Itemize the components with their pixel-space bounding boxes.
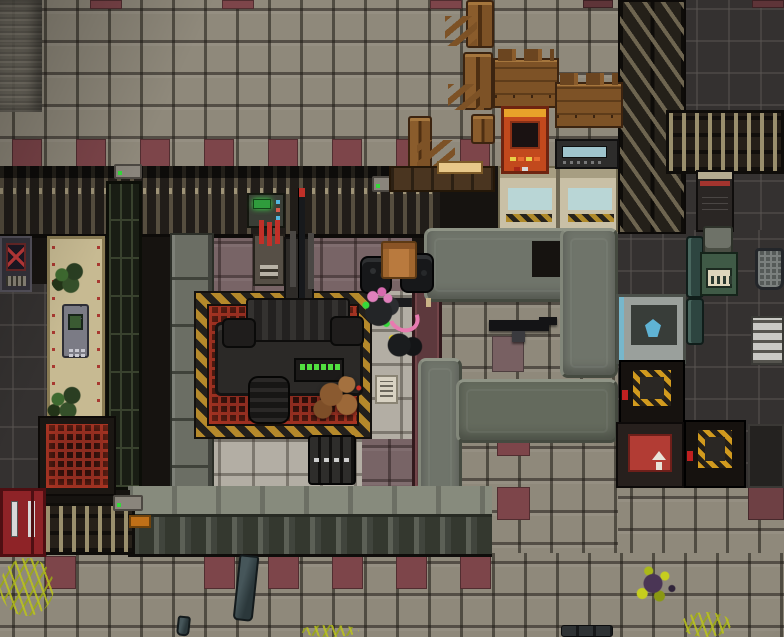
maroon-tile bbox=[222, 0, 254, 9]
turret-tread bbox=[248, 376, 290, 424]
red-lockers[interactable] bbox=[0, 488, 46, 557]
corgi-creature[interactable] bbox=[306, 376, 366, 422]
blade-tip[interactable] bbox=[176, 615, 191, 636]
bottom-wall-band bbox=[128, 486, 492, 557]
wall-device[interactable] bbox=[114, 164, 142, 179]
ore-machine[interactable] bbox=[616, 294, 686, 364]
girder-wall-band bbox=[666, 110, 784, 174]
maroon-tile bbox=[748, 487, 784, 520]
maroon-tile bbox=[90, 0, 122, 9]
maroon-tile bbox=[583, 0, 613, 8]
serving-tray[interactable] bbox=[437, 161, 483, 174]
maroon-tile bbox=[460, 556, 491, 589]
shelf-rack[interactable] bbox=[751, 316, 784, 365]
dead-rat-splat[interactable] bbox=[626, 561, 680, 611]
dark-wall-panel bbox=[748, 424, 784, 488]
red-grid-furnace[interactable] bbox=[40, 418, 114, 494]
maroon-tile bbox=[752, 0, 784, 8]
arcade-machine[interactable] bbox=[501, 106, 549, 174]
floor-top-right-dark bbox=[684, 0, 784, 112]
game-viewport bbox=[0, 0, 784, 637]
orange-sign bbox=[129, 515, 151, 528]
wood-debris bbox=[445, 16, 477, 46]
player-character[interactable] bbox=[356, 286, 432, 334]
rock-patch bbox=[0, 0, 42, 112]
maroon-tile bbox=[396, 556, 427, 589]
paper-sheet[interactable] bbox=[375, 375, 398, 404]
grass-tuft bbox=[301, 625, 359, 637]
maroon-tile bbox=[204, 556, 235, 589]
tall-locker[interactable] bbox=[696, 170, 734, 232]
teal-door-panel[interactable] bbox=[686, 298, 704, 345]
floor-rifle[interactable] bbox=[488, 306, 572, 348]
shadow-gap bbox=[142, 237, 172, 517]
maroon-tile bbox=[268, 139, 298, 168]
recycler-machine[interactable] bbox=[700, 252, 738, 296]
disposal-unit[interactable] bbox=[616, 422, 684, 488]
gray-slab-bottom bbox=[456, 379, 618, 443]
maroon-tile bbox=[12, 139, 42, 168]
left-room-floor-2 bbox=[0, 418, 44, 494]
grass-tuft bbox=[0, 558, 54, 616]
wire-basket[interactable] bbox=[755, 248, 784, 290]
plant-debris bbox=[46, 384, 86, 422]
spider-creature[interactable] bbox=[380, 330, 428, 360]
plant-debris bbox=[51, 262, 87, 294]
grass-tuft bbox=[681, 612, 731, 637]
maroon-tile bbox=[76, 139, 106, 168]
apc-unit[interactable] bbox=[247, 193, 285, 228]
turret-pod bbox=[222, 318, 256, 348]
console-red-x[interactable] bbox=[0, 236, 32, 292]
maroon-tile bbox=[497, 487, 530, 520]
wooden-chair[interactable] bbox=[381, 241, 417, 279]
double-airlock-door[interactable] bbox=[498, 166, 618, 232]
wood-barricade[interactable] bbox=[493, 58, 559, 108]
maroon-tile bbox=[332, 556, 363, 589]
wood-barricade[interactable] bbox=[555, 82, 623, 128]
handheld-radio[interactable] bbox=[62, 304, 89, 358]
engine-block[interactable] bbox=[308, 435, 356, 485]
fuel-rod-machine[interactable] bbox=[253, 234, 285, 286]
wood-pole[interactable] bbox=[471, 114, 495, 144]
wood-debris bbox=[448, 84, 484, 110]
wall-device[interactable] bbox=[113, 495, 143, 511]
maroon-tile bbox=[268, 556, 299, 589]
hazard-pad-machine[interactable] bbox=[684, 420, 746, 488]
hazard-pad-machine[interactable] bbox=[619, 360, 685, 426]
maroon-tile bbox=[332, 139, 362, 168]
microwave[interactable] bbox=[555, 139, 619, 169]
maroon-tile bbox=[430, 0, 462, 9]
maroon-tile bbox=[204, 139, 234, 168]
maroon-tile bbox=[140, 139, 170, 168]
bench-seats[interactable] bbox=[561, 625, 613, 637]
gray-slab-right bbox=[560, 228, 618, 378]
